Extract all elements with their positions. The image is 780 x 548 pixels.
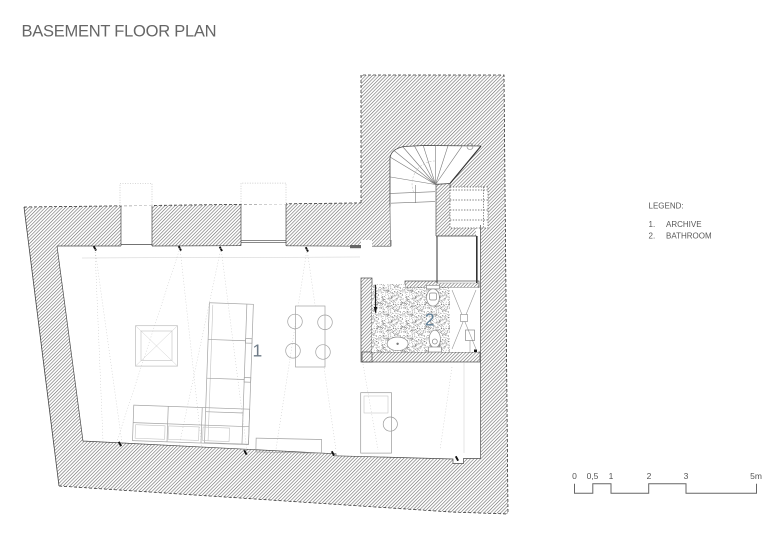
svg-text:0: 0 (572, 471, 577, 481)
svg-text:BATHROOM: BATHROOM (666, 232, 712, 241)
svg-text:3: 3 (684, 471, 689, 481)
svg-text:LEGEND:: LEGEND: (649, 201, 684, 210)
svg-text:BASEMENT FLOOR PLAN: BASEMENT FLOOR PLAN (22, 22, 217, 40)
svg-text:0,5: 0,5 (587, 471, 599, 481)
svg-text:2: 2 (425, 310, 435, 330)
svg-text:5m: 5m (750, 471, 762, 481)
svg-text:2: 2 (647, 471, 652, 481)
svg-text:ARCHIVE: ARCHIVE (666, 220, 702, 229)
svg-text:2.: 2. (649, 232, 656, 241)
svg-text:1.: 1. (649, 220, 656, 229)
svg-text:1: 1 (609, 471, 614, 481)
svg-text:1: 1 (253, 341, 263, 361)
